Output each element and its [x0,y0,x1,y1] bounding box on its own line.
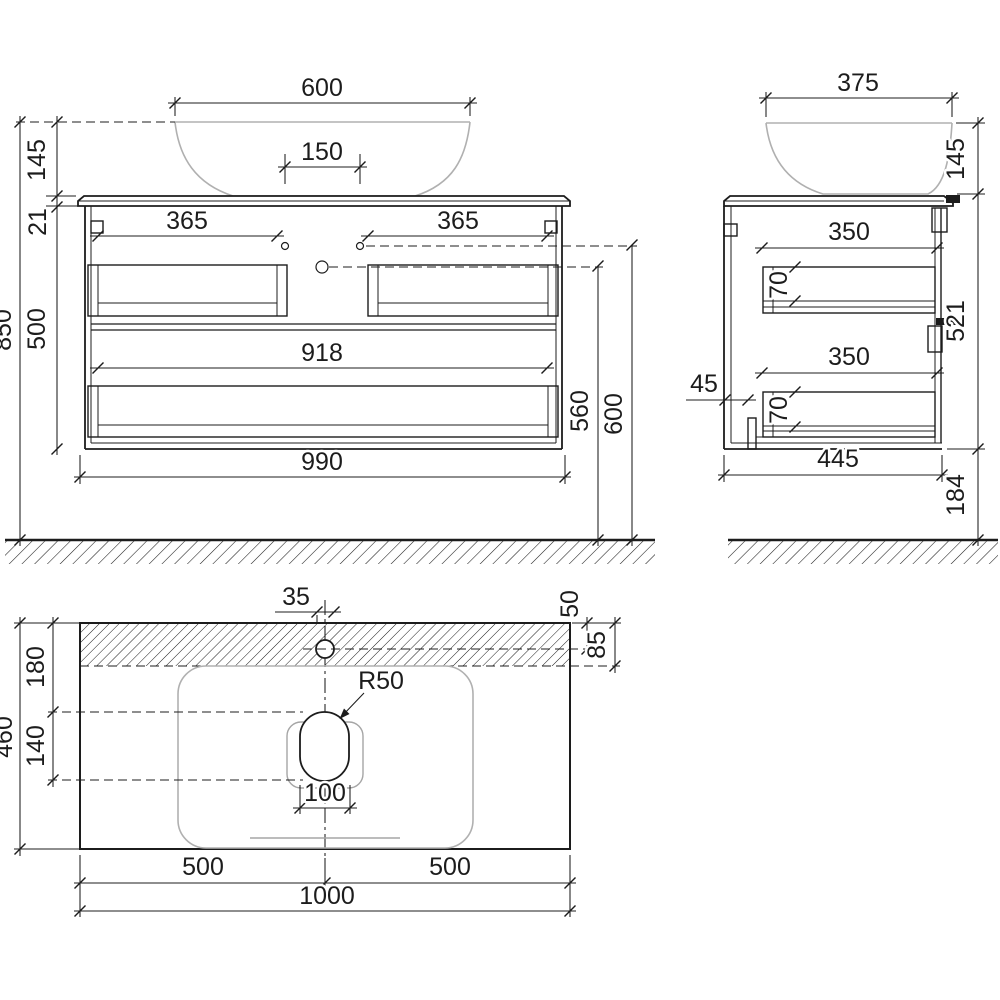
dim-cabinet-depth: 445 [817,445,859,473]
dim-side-body-height: 521 [942,300,970,342]
dim-handle-left: 365 [166,207,208,235]
floor-hatch-side [728,540,998,564]
dim-half-left: 500 [182,853,224,881]
dim-faucet-spacing: 150 [301,138,343,166]
dim-inner-width: 918 [301,339,343,367]
drain-slot [300,712,349,781]
dim-drawer-depth-top: 350 [828,218,870,246]
countertop-side [724,195,960,206]
dim-side-sink-width: 375 [837,69,879,97]
dim-faucet-from-back: 50 [556,590,584,618]
dim-sink-width: 600 [301,74,343,102]
dim-outlet-height: 560 [566,390,594,432]
dim-cabinet-width: 990 [301,448,343,476]
dim-drawer-side-top: 70 [765,271,793,299]
floor-hatch-front [5,540,655,564]
dim-floor-clearance: 184 [942,474,970,516]
towel-bar-tab [946,195,960,203]
dim-handle-right: 365 [437,207,479,235]
technical-drawing-page: 600 150 365 365 918 990 850 145 21 500 5… [0,0,1000,1000]
dim-body-height: 500 [23,308,51,350]
dim-half-right: 500 [429,853,471,881]
dim-sink-height: 145 [23,139,51,181]
dim-top-thickness: 21 [24,208,52,236]
vanity-dimension-drawing: 600 150 365 365 918 990 850 145 21 500 5… [0,0,1000,1000]
dim-mount-height: 600 [600,393,628,435]
dim-drain-width: 100 [304,779,346,807]
countertop-front [78,196,570,206]
dim-drain-zone: 140 [22,725,50,767]
dim-faucet-offset: 35 [282,583,310,611]
dim-drawer-side-bottom: 70 [765,396,793,424]
dim-drawer-depth-bottom: 350 [828,343,870,371]
dim-foot-inset: 45 [690,370,718,398]
dim-counter-depth: 460 [0,716,18,758]
dim-back-zone: 180 [22,646,50,688]
dim-counter-width: 1000 [299,882,355,910]
dim-basin-from-back: 85 [583,631,611,659]
dim-drain-radius: R50 [358,667,404,695]
dim-total-height: 850 [0,309,17,351]
dim-side-sink-height: 145 [942,138,970,180]
